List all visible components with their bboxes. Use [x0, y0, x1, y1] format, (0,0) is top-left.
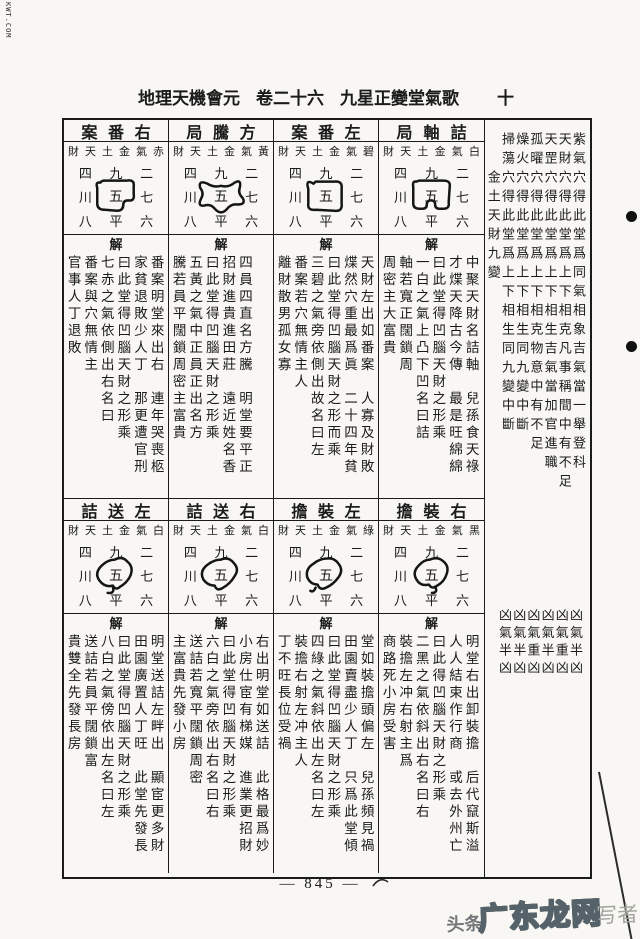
cell-commentary: 解番案明堂來出右連年哭喪柩家貧退敗少人丁那更遭官刑曰此堂得凹腦天財之形乘七赤之氣… [64, 235, 168, 498]
vertical-text-column: 六白之氣旁依出右名曰右 [202, 634, 219, 873]
cell-subtitle-char: 氣 [452, 143, 463, 159]
cell-subtitle-char: 金 [119, 522, 130, 538]
luoshu-number: 四 [289, 542, 302, 561]
luoshu-number: 四 [394, 542, 407, 561]
vertical-text-column: 裝擔左冲右射主爲 [396, 634, 413, 873]
cell-subtitle: 財天土金氣白 [64, 521, 168, 538]
luoshu-number: 二 [456, 163, 469, 182]
luoshu-number: 五 [214, 565, 228, 585]
text-segment: 七赤之氣依側出右名曰 [99, 255, 114, 425]
cell-subtitle-char: 土 [207, 143, 218, 159]
table-cell: 擔裝右財天土金氣黑四九二川五七八平六解明堂右出卸裝擔后代竄斯溢人人結束作行商或去… [379, 499, 484, 873]
cell-subtitle-char: 財 [383, 143, 394, 159]
cell-title-char: 軸 [423, 119, 439, 143]
cell-title-char: 右 [450, 498, 466, 522]
text-segment: 紫氣穴得此堂爲同氣相象吉氣當一舉登科 [571, 132, 586, 474]
vertical-text-column: 煠然穴重最爲眞二十四年貧 [340, 255, 357, 498]
text-segment: 后代竄斯溢 [464, 770, 479, 855]
cell-subtitle-char: 天 [190, 143, 201, 159]
cell-subtitle-char: 財 [278, 522, 289, 538]
cell-subtitle-char: 碧 [363, 143, 374, 159]
vertical-text-column: 曰此堂得凹腦天財之形乘 [324, 634, 341, 873]
jie-label: 解 [169, 616, 273, 632]
text-segment: 曰此堂得凹腦天財之形乘 [115, 634, 130, 821]
luoshu-number: 四 [79, 542, 92, 561]
cell-subtitle-char: 土 [417, 522, 428, 538]
cell-subtitle-char: 天 [295, 522, 306, 538]
vertical-text-column: 貴雙全先發長房 [64, 634, 81, 873]
cell-subtitle-char: 天 [190, 522, 201, 538]
cell-title-char: 詰 [186, 498, 202, 522]
pen-mark-icon [372, 877, 390, 888]
cell-title-char: 右 [240, 498, 256, 522]
cell-subtitle-char: 金 [435, 143, 446, 159]
cell-commentary: 解右出明堂如送詰此格最爲妙小房仕宦有梯媒進業更招財曰此堂得凹腦天財之形乘六白之氣… [169, 614, 273, 873]
luoshu-number: 七 [245, 566, 258, 585]
cell-title-char: 擔 [291, 498, 307, 522]
cell-title-char: 案 [291, 119, 307, 143]
vertical-text-column: 小房仕宦有梯媒進業更招財 [235, 634, 252, 873]
text-segment: 主富貴先發小房 [171, 634, 186, 753]
cell-title-char: 裝 [318, 498, 334, 522]
vertical-text-column: 一白之氣上凸下凹名曰詰 [412, 255, 429, 498]
luoshu-number: 六 [245, 590, 258, 609]
vertical-text-column: 五黃之氣中正員正出名方 [186, 255, 203, 498]
luoshu-diagram: 四九二川五七八平六 [169, 538, 273, 614]
luoshu-number: 二 [350, 542, 363, 561]
luoshu-number: 川 [394, 566, 407, 585]
vertical-text-column: 七赤之氣依側出右名曰 [97, 255, 114, 498]
text-segment: 天財穴得此堂爲上下相克凡事稱間中有不足 [557, 132, 572, 493]
commentary-column: 天罡穴得此堂爲上下相生吉氣當加官進職 [542, 132, 556, 512]
cell-subtitle-char: 氣 [136, 143, 147, 159]
cell-subtitle-char: 天 [85, 143, 96, 159]
vertical-text-column: 中聚天財名詰軸兒孫食天祿 [462, 255, 479, 498]
cell-title-char: 左 [135, 498, 151, 522]
vertical-text-column: 騰若員平闊鎖周密主富貴 [169, 255, 186, 498]
margin-dot-icon [626, 341, 637, 352]
watermark-brand: 广东龙网 [477, 888, 603, 938]
table-cell: 擔裝左財天土金氣綠四九二川五七八平六解堂如裝擔頭偏左兒孫頻見禍田園賣盡少人丁只爲… [274, 499, 379, 873]
vertical-text-column: 曰此堂得凹腦天財之形乘 [219, 634, 236, 873]
cell-commentary: 解四員四直名方騰明堂要平正招財進貴進田莊遠近姓名香曰此堂得凹腦天財之形乘五黃之氣… [169, 235, 273, 498]
text-segment: 曰此堂得凹腦天財之形乘 [204, 255, 219, 442]
vertical-text-column: 曰此堂得凹腦天財之形乘 [114, 255, 131, 498]
luoshu-number: 五 [319, 565, 333, 585]
table-cell: 案番右財天土金氣赤四九二川五七八平六解番案明堂來出右連年哭喪柩家貧退敗少人丁那更… [64, 120, 169, 499]
text-segment: 裝擔左冲右射主爲 [397, 634, 412, 770]
vertical-text-column: 四員四直名方騰明堂要平正 [235, 255, 252, 498]
title-work: 地理天機會元 [138, 89, 240, 108]
luoshu-number: 川 [289, 187, 302, 206]
text-segment: 軸若寬正闊鎖周 [397, 255, 412, 374]
jie-label: 解 [274, 616, 378, 632]
cell-title-char: 番 [108, 119, 124, 143]
text-segment: 明堂要平正 [237, 391, 252, 476]
cell-subtitle-char: 財 [173, 522, 184, 538]
cell-subtitle-char: 天 [400, 143, 411, 159]
luoshu-number: 八 [184, 211, 197, 230]
luoshu-diagram: 四九二川五七八平六 [169, 159, 273, 235]
text-segment: 兒孫食天祿 [464, 391, 479, 476]
luoshu-diagram: 四九二川五七八平六 [64, 538, 168, 614]
vertical-text-column: 三碧之氣旁依側出故名曰左 [307, 255, 324, 498]
cell-title-char: 裝 [423, 498, 439, 522]
cell-subtitle: 財天土金氣白 [169, 521, 273, 538]
luoshu-number: 川 [184, 566, 197, 585]
vertical-text-column: 八白之氣傍依出左名曰左 [97, 634, 114, 873]
luoshu-number: 六 [140, 590, 153, 609]
cell-subtitle-char: 土 [102, 522, 113, 538]
cell-subtitle-char: 氣 [241, 143, 252, 159]
luoshu-number: 五 [109, 565, 123, 585]
text-segment: 進業更招財 [237, 770, 252, 855]
cells-grid: 案番右財天土金氣赤四九二川五七八平六解番案明堂來出右連年哭喪柩家貧退敗少人丁那更… [64, 120, 485, 877]
luoshu-number: 五 [109, 186, 123, 206]
vertical-text-block: 堂如裝擔頭偏左兒孫頻見禍田園賣盡少人丁只爲此堂傾曰此堂得凹腦天財之形乘四綠之氣斜… [274, 632, 377, 873]
luoshu-number: 七 [350, 187, 363, 206]
text-segment: 裝擔右射左冲主人 [292, 634, 307, 770]
cell-subtitle: 財天土金氣赤 [64, 142, 168, 159]
verdict-column: 凶氣重凶 [554, 608, 568, 690]
text-segment: 番案明堂來出右 [149, 255, 164, 374]
cell-title-char: 詰 [450, 119, 466, 143]
luoshu-number: 五 [425, 565, 439, 585]
cell-commentary: 解明堂送詰左畔出顯宦更多財田園廣置人丁旺此堂先發長曰此堂得凹腦天財之形乘八白之氣… [64, 614, 168, 873]
vertical-text-column: 二黑之氣依斜出右名曰右 [412, 634, 429, 873]
cell-subtitle-char: 金 [224, 522, 235, 538]
site-watermark: 头条 广东龙网 写者 [445, 886, 639, 939]
vertical-text-column: 商路死小房受害 [379, 634, 396, 873]
cell-subtitle-char: 財 [68, 143, 79, 159]
cell-subtitle-char: 天 [85, 522, 96, 538]
luoshu-number: 二 [245, 542, 258, 561]
vertical-text-column: 主富貴先發小房 [169, 634, 186, 873]
luoshu-number: 七 [456, 566, 469, 585]
luoshu-number: 八 [289, 590, 302, 609]
luoshu-number: 七 [245, 187, 258, 206]
text-segment: 小房仕宦有梯媒 [237, 634, 252, 753]
jie-label: 解 [274, 237, 378, 253]
cell-subtitle-char: 財 [68, 522, 79, 538]
verdict-columns: 凶氣半凶凶氣重凶凶氣半凶凶氣重凶凶氣半凶凶氣半凶 [497, 608, 582, 690]
text-segment: 孤曜穴得此堂爲上下相克物意中有不足 [528, 132, 543, 455]
text-segment: 曰此堂得凹腦天財之形乘 [115, 255, 130, 442]
vertical-text-column: 曰此堂得凹腦天財之形乘 [202, 255, 219, 498]
text-segment: 曰此堂得凹腦天財之形乘 [430, 255, 445, 442]
vertical-text-column: 裝擔右射左冲主人 [291, 634, 308, 873]
luoshu-diagram: 四九二川五七八平六 [64, 159, 168, 235]
luoshu-number: 八 [394, 590, 407, 609]
luoshu-number: 六 [456, 211, 469, 230]
corner-watermark: KWT.COM [4, 2, 12, 39]
text-segment: 貴雙全先發長房 [66, 634, 81, 753]
cell-subtitle-char: 財 [278, 143, 289, 159]
verdict-column: 凶氣重凶 [525, 608, 539, 690]
cell-subtitle-char: 金 [435, 522, 446, 538]
commentary-column: 紫氣穴得此堂爲同氣相象吉氣當一舉登科 [571, 132, 585, 512]
title-chapter: 九星正變堂氣歌 [340, 89, 459, 108]
cell-title-char: 番 [318, 119, 334, 143]
cell-title-char: 右 [135, 119, 151, 143]
luoshu-number: 川 [79, 566, 92, 585]
text-segment: 送詰若員平闊鎖富 [82, 634, 97, 770]
cell-subtitle-char: 土 [207, 522, 218, 538]
vertical-text-column: 曰此堂得凹腦天財之形而乘 [324, 255, 341, 498]
text-segment: 招財進貴進田莊 [220, 255, 235, 374]
text-segment: 金土天財九變 [486, 170, 501, 284]
text-segment: 曰此堂得凹腦天財之形而乘 [325, 255, 340, 459]
text-segment: 番案若穴無情主人 [292, 255, 307, 391]
commentary-columns: 紫氣穴得此堂爲同氣相象吉氣當一舉登科天財穴得此堂爲上下相克凡事稱間中有不足天罡穴… [486, 132, 585, 512]
cell-title: 局軸詰 [379, 120, 484, 142]
text-segment: 田園賣盡少人丁 [342, 634, 357, 753]
verdict-column: 凶氣半凶 [511, 608, 525, 690]
cell-title: 擔裝右 [379, 499, 484, 521]
cell-subtitle-char: 黑 [469, 522, 480, 538]
cell-title: 擔裝左 [274, 499, 378, 521]
vertical-text-column: 軸若寬正闊鎖周 [396, 255, 413, 498]
vertical-text-column: 曰此堂得凹腦天財之形乘 [429, 255, 446, 498]
text-segment: 右出明堂如送詰 [254, 634, 269, 753]
cell-title-char: 騰 [213, 119, 229, 143]
cell-title-char: 局 [186, 119, 202, 143]
cell-subtitle-char: 財 [383, 522, 394, 538]
cell-title-char: 擔 [396, 498, 412, 522]
commentary-column: 燥火穴得此堂爲上下相生同九變中斷 [514, 132, 528, 512]
luoshu-diagram: 四九二川五七八平六 [379, 538, 484, 614]
text-segment: 明堂送詰左畔出 [149, 634, 164, 753]
text-segment: 四綠之氣斜依出左名曰左 [309, 634, 324, 821]
luoshu-number: 六 [350, 211, 363, 230]
cell-subtitle-char: 白 [469, 143, 480, 159]
cell-subtitle-char: 天 [400, 522, 411, 538]
text-segment: 最是旺綿綿 [447, 391, 462, 476]
vertical-text-block: 四員四直名方騰明堂要平正招財進貴進田莊遠近姓名香曰此堂得凹腦天財之形乘五黃之氣中… [169, 253, 255, 498]
text-segment: 曰此堂得凹腦天財之形乘 [220, 634, 235, 821]
text-segment: 或去外州亡 [447, 770, 462, 855]
luoshu-number: 二 [140, 542, 153, 561]
cell-subtitle-char: 金 [224, 143, 235, 159]
text-segment: 曰此堂得凹腦天財之形乘 [325, 634, 340, 821]
cell-subtitle-char: 土 [102, 143, 113, 159]
text-segment: 官事人丁退敗 [66, 255, 81, 357]
table-cell: 局騰方財天土金氣黃四九二川五七八平六解四員四直名方騰明堂要平正招財進貴進田莊遠近… [169, 120, 274, 499]
luoshu-number: 八 [289, 211, 302, 230]
title-volume: 卷二十六 [256, 89, 324, 108]
text-segment: 明堂右出卸裝擔 [464, 634, 479, 753]
vertical-text-column: 田園賣盡少人丁只爲此堂傾 [340, 634, 357, 873]
margin-dot-icon [626, 211, 637, 222]
verdict-column: 凶氣半凶 [539, 608, 553, 690]
cell-commentary: 解天財左出如番案人寡及財敗煠然穴重最爲眞二十四年貧曰此堂得凹腦天財之形而乘三碧之… [274, 235, 378, 498]
vertical-text-column: 四綠之氣斜依出左名曰左 [307, 634, 324, 873]
content-table: 案番右財天土金氣赤四九二川五七八平六解番案明堂來出右連年哭喪柩家貧退敗少人丁那更… [62, 118, 592, 879]
luoshu-diagram: 四九二川五七八平六 [274, 159, 378, 235]
commentary-column: 掃蕩穴得此堂爲上下相生同九變中斷 [500, 132, 514, 512]
cell-title-char: 方 [240, 119, 256, 143]
cell-subtitle-char: 土 [312, 143, 323, 159]
text-segment: 騰若員平闊鎖周密主富貴 [171, 255, 186, 442]
commentary-column: 天財穴得此堂爲上下相克凡事稱間中有不足 [557, 132, 571, 512]
cell-title: 詰送左 [64, 499, 168, 521]
cell-title: 局騰方 [169, 120, 273, 142]
cell-subtitle: 財天土金氣碧 [274, 142, 378, 159]
cell-subtitle-char: 金 [329, 143, 340, 159]
luoshu-number: 川 [79, 187, 92, 206]
watermark-suffix: 写者 [595, 898, 639, 930]
cell-subtitle-char: 氣 [452, 522, 463, 538]
vertical-text-column: 送詰若寬平闊鎖周密 [186, 634, 203, 873]
vertical-text-column: 番案明堂來出右連年哭喪柩 [147, 255, 164, 498]
cell-title: 詰送右 [169, 499, 273, 521]
vertical-text-block: 明堂右出卸裝擔后代竄斯溢人人結束作行商或去外州亡曰此得凹腦天財之形乘二黑之氣依斜… [379, 632, 482, 873]
jie-label: 解 [169, 237, 273, 253]
luoshu-number: 五 [319, 186, 333, 206]
vertical-text-column: 才煠天降古今傳最是旺綿綿 [445, 255, 462, 498]
luoshu-number: 五 [214, 186, 228, 206]
vertical-text-column: 送詰若員平闊鎖富 [81, 634, 98, 873]
luoshu-number: 二 [456, 542, 469, 561]
text-segment: 二黑之氣依斜出右名曰右 [414, 634, 429, 821]
cell-subtitle-char: 土 [312, 522, 323, 538]
cell-subtitle-char: 財 [173, 143, 184, 159]
text-segment: 田園廣置人丁旺 [132, 634, 147, 753]
text-segment: 番案與穴無情主 [82, 255, 97, 374]
cell-commentary: 解堂如裝擔頭偏左兒孫頻見禍田園賣盡少人丁只爲此堂傾曰此堂得凹腦天財之形乘四綠之氣… [274, 614, 378, 873]
table-cell: 詰送左財天土金氣白四九二川五七八平六解明堂送詰左畔出顯宦更多財田園廣置人丁旺此堂… [64, 499, 169, 873]
text-segment: 天財左出如番案 [359, 255, 374, 374]
text-segment: 人寡及財敗 [359, 391, 374, 476]
luoshu-number: 六 [140, 211, 153, 230]
cell-title-char: 送 [213, 498, 229, 522]
text-segment: 中聚天財名詰軸 [464, 255, 479, 374]
cell-subtitle-char: 氣 [346, 522, 357, 538]
cell-title: 案番右 [64, 120, 168, 142]
cell-title-char: 詰 [81, 498, 97, 522]
text-segment: 六白之氣旁依出右名曰右 [204, 634, 219, 821]
cell-title-char: 案 [81, 119, 97, 143]
vertical-text-column: 明堂送詰左畔出顯宦更多財 [147, 634, 164, 873]
cell-subtitle-char: 金 [329, 522, 340, 538]
vertical-text-block: 天財左出如番案人寡及財敗煠然穴重最爲眞二十四年貧曰此堂得凹腦天財之形而乘三碧之氣… [274, 253, 377, 498]
luoshu-number: 四 [184, 542, 197, 561]
vertical-text-column: 曰此得凹腦天財之形乘 [429, 634, 446, 873]
vertical-text-column: 曰此堂得凹腦天財之形乘 [114, 634, 131, 873]
luoshu-number: 四 [184, 163, 197, 182]
cell-subtitle: 財天土金氣白 [379, 142, 484, 159]
text-segment: 那更遭官刑 [132, 391, 147, 476]
luoshu-number: 川 [394, 187, 407, 206]
cell-commentary: 解明堂右出卸裝擔后代竄斯溢人人結束作行商或去外州亡曰此得凹腦天財之形乘二黑之氣依… [379, 614, 484, 873]
scanned-book-page: KWT.COM 地理天機會元卷二十六九星正變堂氣歌十 案番右財天土金氣赤四九二川… [0, 0, 640, 939]
cell-subtitle-char: 氣 [136, 522, 147, 538]
vertical-text-column: 官事人丁退敗 [64, 255, 81, 498]
text-segment: 丁不旺長位受禍 [276, 634, 291, 753]
text-segment: 掃蕩穴得此堂爲上下相生同九變中斷 [500, 132, 515, 436]
commentary-column: 金土天財九變 [486, 132, 500, 512]
cell-title-char: 左 [345, 498, 361, 522]
text-segment: 兒孫頻見禍 [359, 770, 374, 855]
text-segment: 遠近姓名香 [220, 391, 235, 476]
vertical-text-column: 人人結束作行商或去外州亡 [445, 634, 462, 873]
cell-subtitle-char: 綠 [363, 522, 374, 538]
text-segment: 人人結束作行商 [447, 634, 462, 753]
vertical-text-column: 右出明堂如送詰此格最爲妙 [252, 634, 269, 873]
table-cell: 局軸詰財天土金氣白四九二川五七八平六解中聚天財名詰軸兒孫食天祿才煠天降古今傳最是… [379, 120, 484, 499]
cell-subtitle-char: 黃 [258, 143, 269, 159]
luoshu-number: 八 [184, 590, 197, 609]
cell-subtitle-char: 金 [119, 143, 130, 159]
vertical-text-block: 明堂送詰左畔出顯宦更多財田園廣置人丁旺此堂先發長曰此堂得凹腦天財之形乘八白之氣傍… [64, 632, 167, 873]
table-cell: 詰送右財天土金氣白四九二川五七八平六解右出明堂如送詰此格最爲妙小房仕宦有梯媒進業… [169, 499, 274, 873]
jie-label: 解 [64, 237, 168, 253]
table-cell: 案番左財天土金氣碧四九二川五七八平六解天財左出如番案人寡及財敗煠然穴重最爲眞二十… [274, 120, 379, 499]
jie-label: 解 [64, 616, 168, 632]
luoshu-number: 二 [245, 163, 258, 182]
vertical-text-column: 田園廣置人丁旺此堂先發長 [130, 634, 147, 873]
cell-title-char: 送 [108, 498, 124, 522]
verdict-column: 凶氣半凶 [568, 608, 582, 690]
vertical-text-block: 番案明堂來出右連年哭喪柩家貧退敗少人丁那更遭官刑曰此堂得凹腦天財之形乘七赤之氣依… [64, 253, 167, 498]
luoshu-number: 五 [425, 186, 439, 206]
text-segment: 燥火穴得此堂爲上下相生同九變中斷 [514, 132, 529, 436]
vertical-text-column: 堂如裝擔頭偏左兒孫頻見禍 [357, 634, 374, 873]
vertical-text-column: 招財進貴進田莊遠近姓名香 [219, 255, 236, 498]
luoshu-diagram: 四九二川五七八平六 [379, 159, 484, 235]
vertical-text-block: 中聚天財名詰軸兒孫食天祿才煠天降古今傳最是旺綿綿曰此堂得凹腦天財之形乘一白之氣上… [379, 253, 482, 498]
luoshu-number: 四 [79, 163, 92, 182]
vertical-text-column: 明堂右出卸裝擔后代竄斯溢 [462, 634, 479, 873]
text-segment: 只爲此堂傾 [342, 770, 357, 855]
text-segment: 五黃之氣中正員正出名方 [187, 255, 202, 442]
cell-subtitle-char: 土 [417, 143, 428, 159]
cell-subtitle-char: 天 [295, 143, 306, 159]
luoshu-number: 川 [289, 566, 302, 585]
cell-subtitle-char: 白 [153, 522, 164, 538]
jie-label: 解 [379, 616, 484, 632]
text-segment: 才煠天降古今傳 [447, 255, 462, 374]
cell-subtitle-char: 赤 [153, 143, 164, 159]
vertical-text-column: 番案若穴無情主人 [291, 255, 308, 498]
text-segment: 一白之氣上凸下凹名曰詰 [414, 255, 429, 442]
page-title: 地理天機會元卷二十六九星正變堂氣歌十 [62, 84, 590, 109]
luoshu-number: 二 [350, 163, 363, 182]
cell-title-char: 左 [345, 119, 361, 143]
text-segment: 曰此得凹腦天財之形乘 [430, 634, 445, 804]
cell-commentary: 解中聚天財名詰軸兒孫食天祿才煠天降古今傳最是旺綿綿曰此堂得凹腦天財之形乘一白之氣… [379, 235, 484, 498]
luoshu-diagram: 四九二川五七八平六 [274, 538, 378, 614]
text-segment: 三碧之氣旁依側出故名曰左 [309, 255, 324, 459]
luoshu-number: 七 [456, 187, 469, 206]
vertical-text-column: 天財左出如番案人寡及財敗 [357, 255, 374, 498]
text-segment: 送詰若寬平闊鎖周密 [187, 634, 202, 787]
luoshu-number: 二 [140, 163, 153, 182]
cell-title: 案番左 [274, 120, 378, 142]
verdict-column: 凶氣半凶 [497, 608, 511, 690]
text-segment: 八白之氣傍依出左名曰左 [99, 634, 114, 821]
text-segment: 天罡穴得此堂爲上下相生吉氣當加官進職 [543, 132, 558, 474]
text-segment: 堂如裝擔頭偏左 [359, 634, 374, 753]
luoshu-number: 七 [350, 566, 363, 585]
luoshu-number: 六 [456, 590, 469, 609]
luoshu-number: 川 [184, 187, 197, 206]
vertical-text-column: 番案與穴無情主 [81, 255, 98, 498]
text-segment: 煠然穴重最爲眞 [342, 255, 357, 374]
cell-subtitle-char: 白 [258, 522, 269, 538]
luoshu-number: 四 [394, 163, 407, 182]
luoshu-number: 七 [140, 566, 153, 585]
